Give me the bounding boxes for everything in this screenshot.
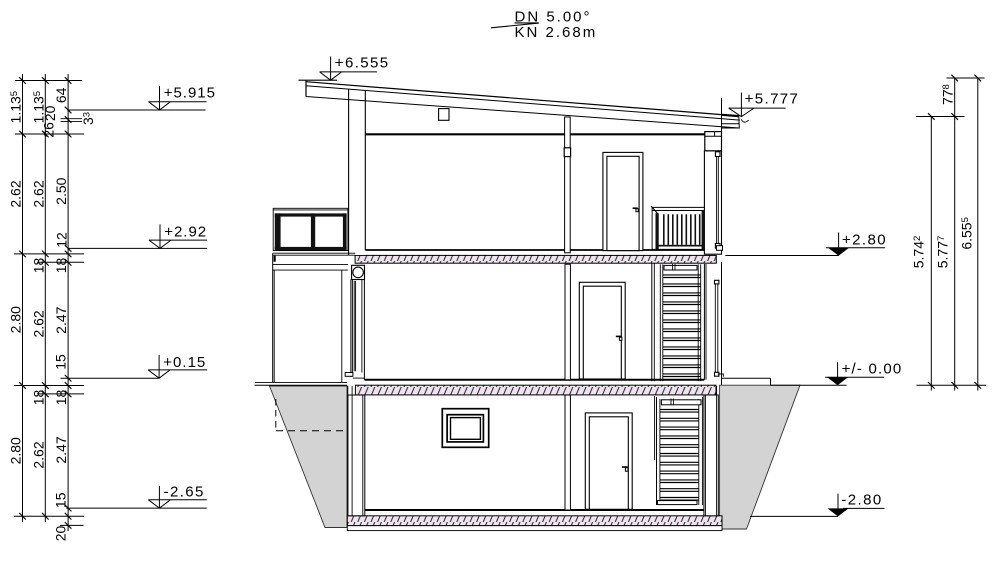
- svg-text:+5.915: +5.915: [164, 85, 216, 102]
- svg-text:2.62: 2.62: [31, 441, 47, 468]
- svg-text:2.62: 2.62: [31, 310, 47, 337]
- svg-text:-2.65: -2.65: [164, 483, 205, 500]
- svg-text:2.62: 2.62: [31, 180, 47, 207]
- svg-text:+5.777: +5.777: [745, 91, 800, 108]
- svg-text:64: 64: [53, 87, 69, 103]
- svg-text:20: 20: [42, 105, 58, 121]
- svg-text:20: 20: [53, 526, 69, 542]
- svg-text:12: 12: [54, 232, 70, 248]
- svg-text:+0.15: +0.15: [163, 354, 206, 371]
- svg-text:-2.80: -2.80: [841, 491, 882, 508]
- svg-text:15: 15: [53, 492, 69, 508]
- svg-text:+2.80: +2.80: [842, 231, 887, 248]
- svg-text:18: 18: [31, 258, 47, 274]
- svg-text:2.47: 2.47: [53, 436, 69, 463]
- svg-text:2.80: 2.80: [8, 437, 24, 464]
- svg-text:18: 18: [53, 258, 69, 274]
- svg-text:2.80: 2.80: [8, 306, 24, 333]
- svg-text:+6.555: +6.555: [335, 55, 390, 72]
- svg-text:2.62: 2.62: [8, 180, 24, 207]
- svg-text:+/- 0.00: +/- 0.00: [842, 360, 903, 377]
- svg-text:18: 18: [53, 390, 69, 406]
- svg-text:18: 18: [31, 390, 47, 406]
- svg-text:KN 2.68m: KN 2.68m: [515, 24, 598, 41]
- svg-text:15: 15: [53, 354, 69, 370]
- svg-text:+2.92: +2.92: [164, 224, 207, 241]
- svg-text:26: 26: [40, 122, 56, 138]
- svg-text:2.47: 2.47: [53, 306, 69, 333]
- svg-text:2.50: 2.50: [53, 177, 69, 204]
